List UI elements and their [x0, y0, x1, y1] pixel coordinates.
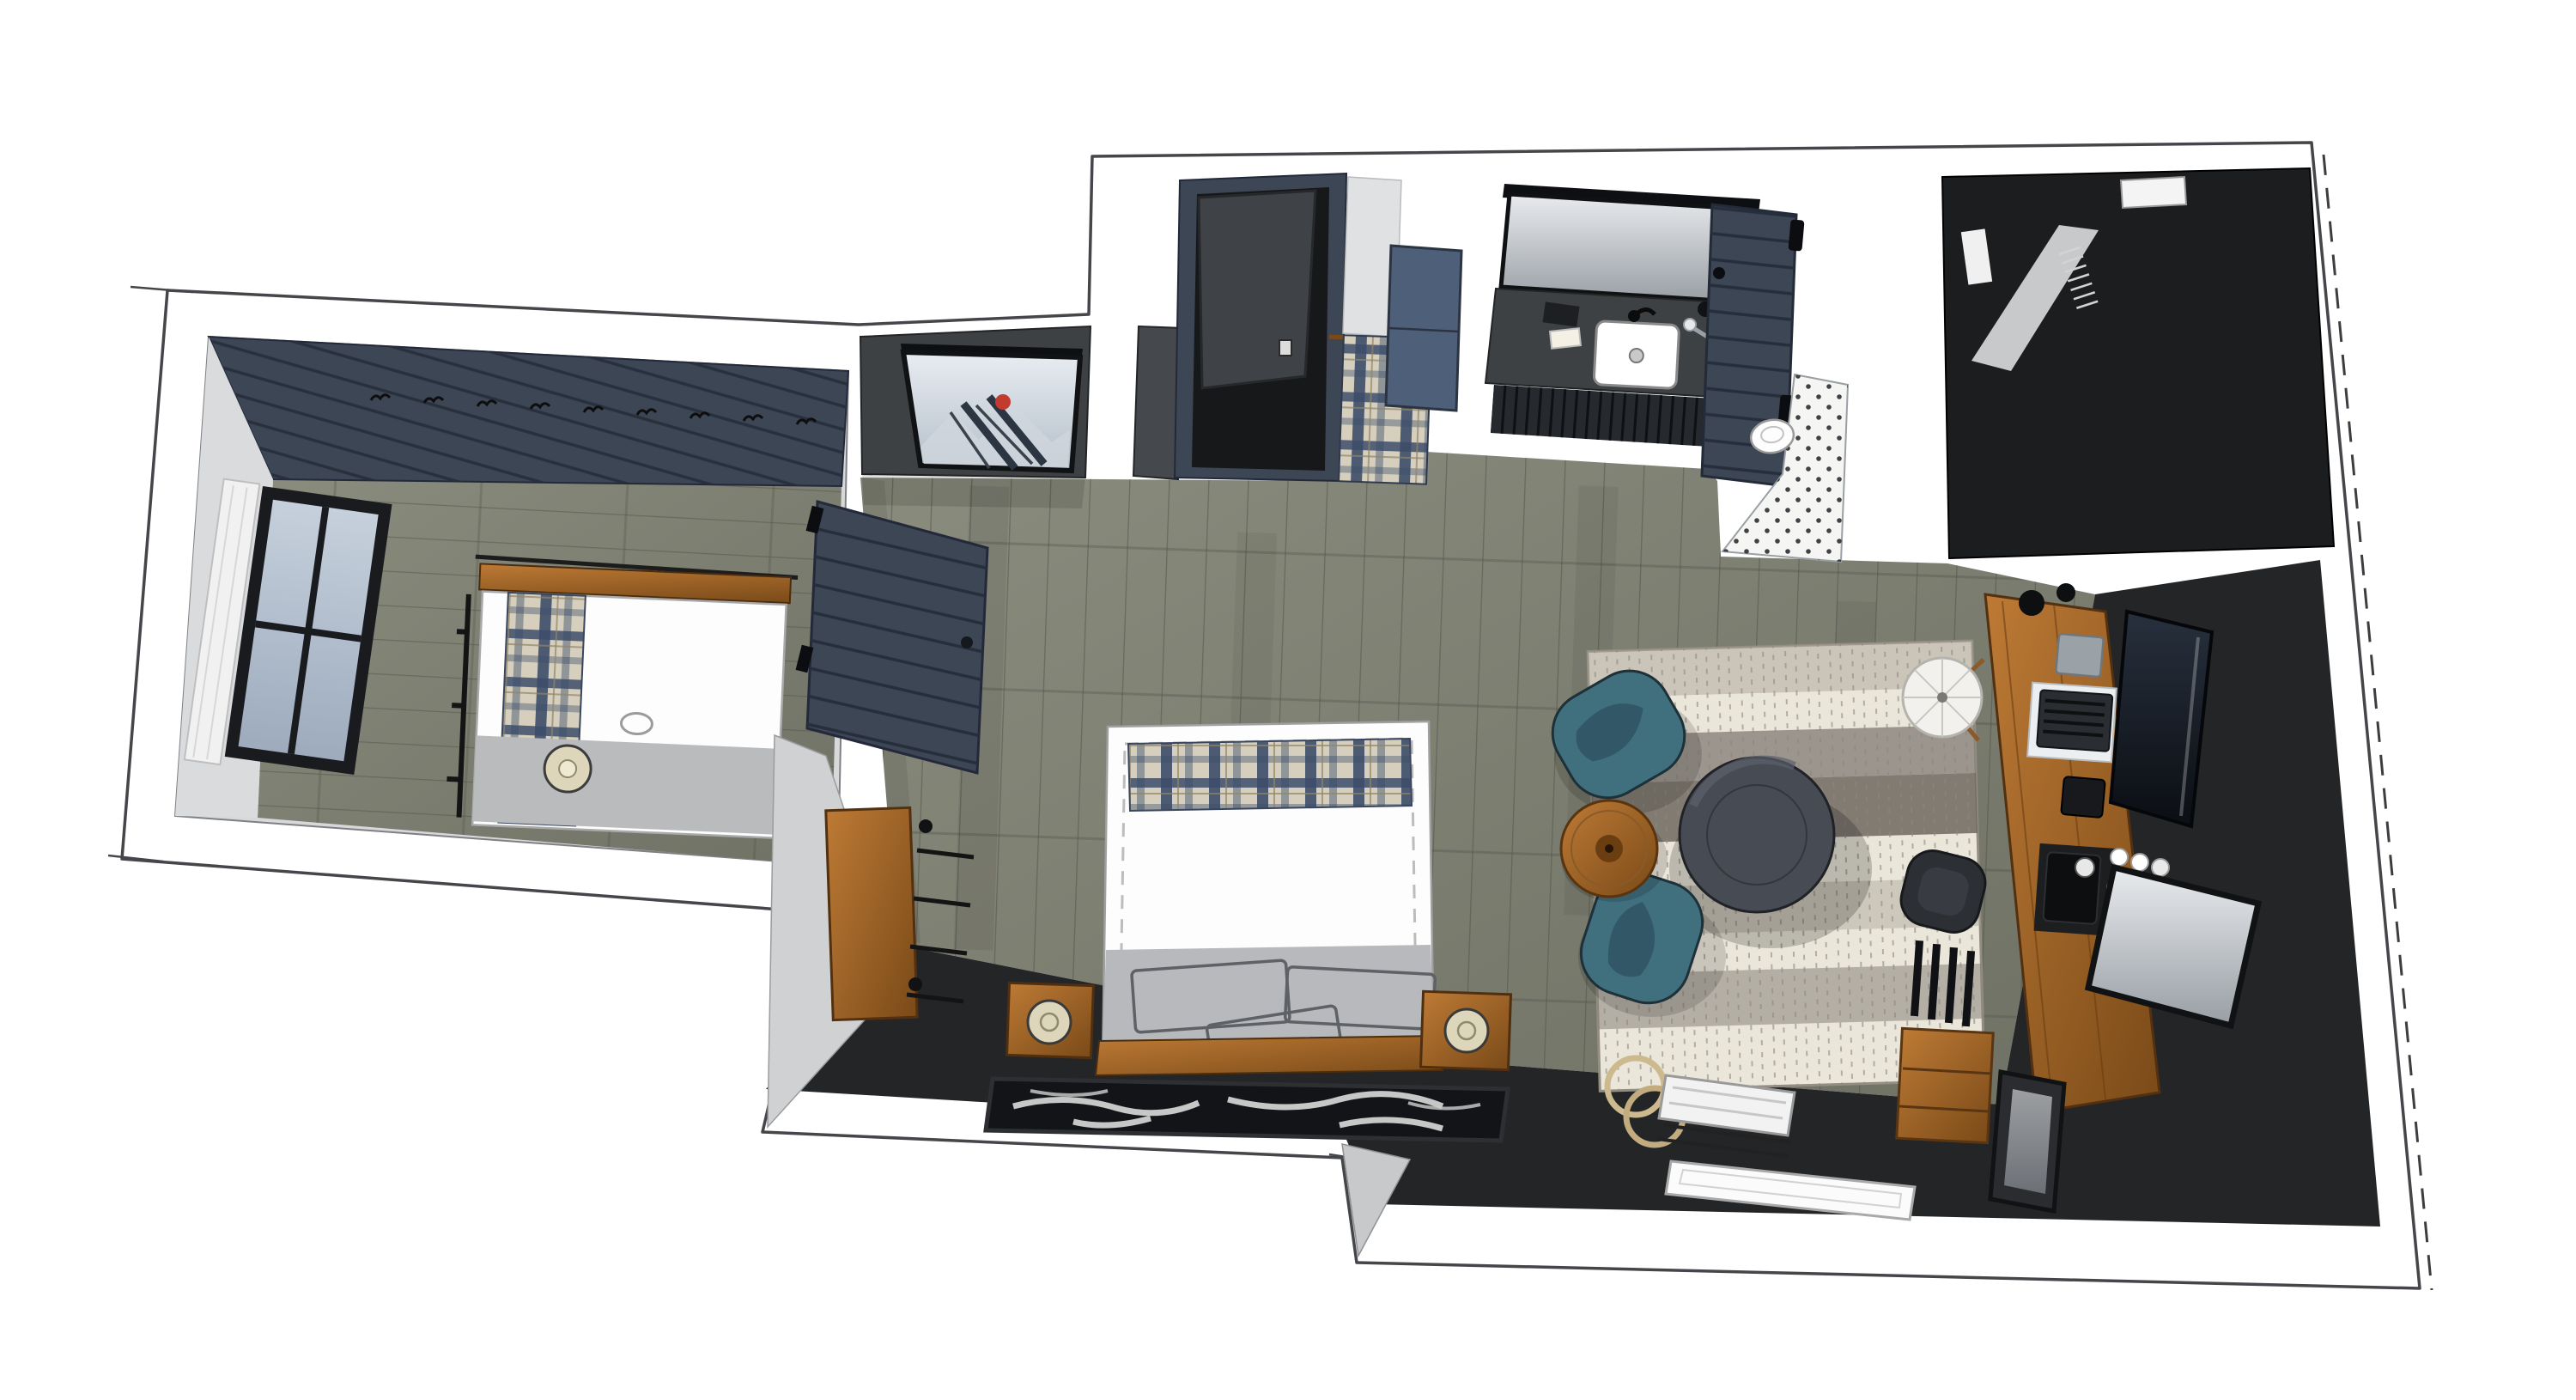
razor-head: [1684, 319, 1696, 331]
console-knob-1: [919, 819, 933, 833]
laptop: [2037, 690, 2112, 752]
floorplan-stage: [0, 0, 2576, 1400]
sink-drain: [1629, 349, 1643, 363]
entry-door-handle: [1279, 340, 1291, 356]
desk-phone: [2061, 776, 2105, 818]
cowhide-runner-rug: [986, 1079, 1508, 1141]
bed-headboard: [1096, 1036, 1443, 1075]
desk-speaker: [2019, 590, 2044, 616]
white-storage-box: [2121, 177, 2186, 208]
bunk-room: [175, 337, 848, 866]
bunk-foot-blanket: [472, 735, 780, 834]
wall-shadow-under-accent: [862, 474, 1085, 508]
console-top: [826, 807, 917, 1020]
framed-ski-poster: [901, 344, 1083, 471]
nightstand-right: [1420, 991, 1510, 1070]
barn-door-slats: [807, 502, 987, 773]
lamp-left: [1028, 1001, 1071, 1044]
tissue-box: [2056, 634, 2104, 677]
sketch-overshoot-1: [131, 287, 193, 292]
sliding-barn-door-bedroom: [796, 502, 987, 773]
bunk-lamp-top: [559, 760, 577, 778]
desk-plant-silhouette: [2057, 583, 2075, 602]
door-knob: [1713, 267, 1725, 279]
sink: [1594, 321, 1680, 389]
bunk-bed: [445, 556, 798, 838]
bed-plaid-band: [1128, 739, 1412, 811]
closet: [1942, 168, 2334, 558]
soap-bar: [1550, 328, 1581, 348]
lamp-right: [1445, 1009, 1488, 1052]
lamp-finial: [1937, 692, 1947, 703]
poster-red-dot: [995, 394, 1011, 410]
round-ottoman: [1680, 758, 1834, 912]
entry-door-leaf: [1199, 191, 1315, 388]
floorplan-render: [0, 0, 2576, 1400]
coffee-machine-dial: [2075, 858, 2094, 877]
barn-door-handle: [961, 636, 973, 648]
wood-bookcase: [1897, 1028, 1994, 1142]
nightstand-left: [1007, 983, 1094, 1057]
door-hinge-top: [1788, 219, 1804, 251]
console-knob-2: [908, 977, 922, 991]
